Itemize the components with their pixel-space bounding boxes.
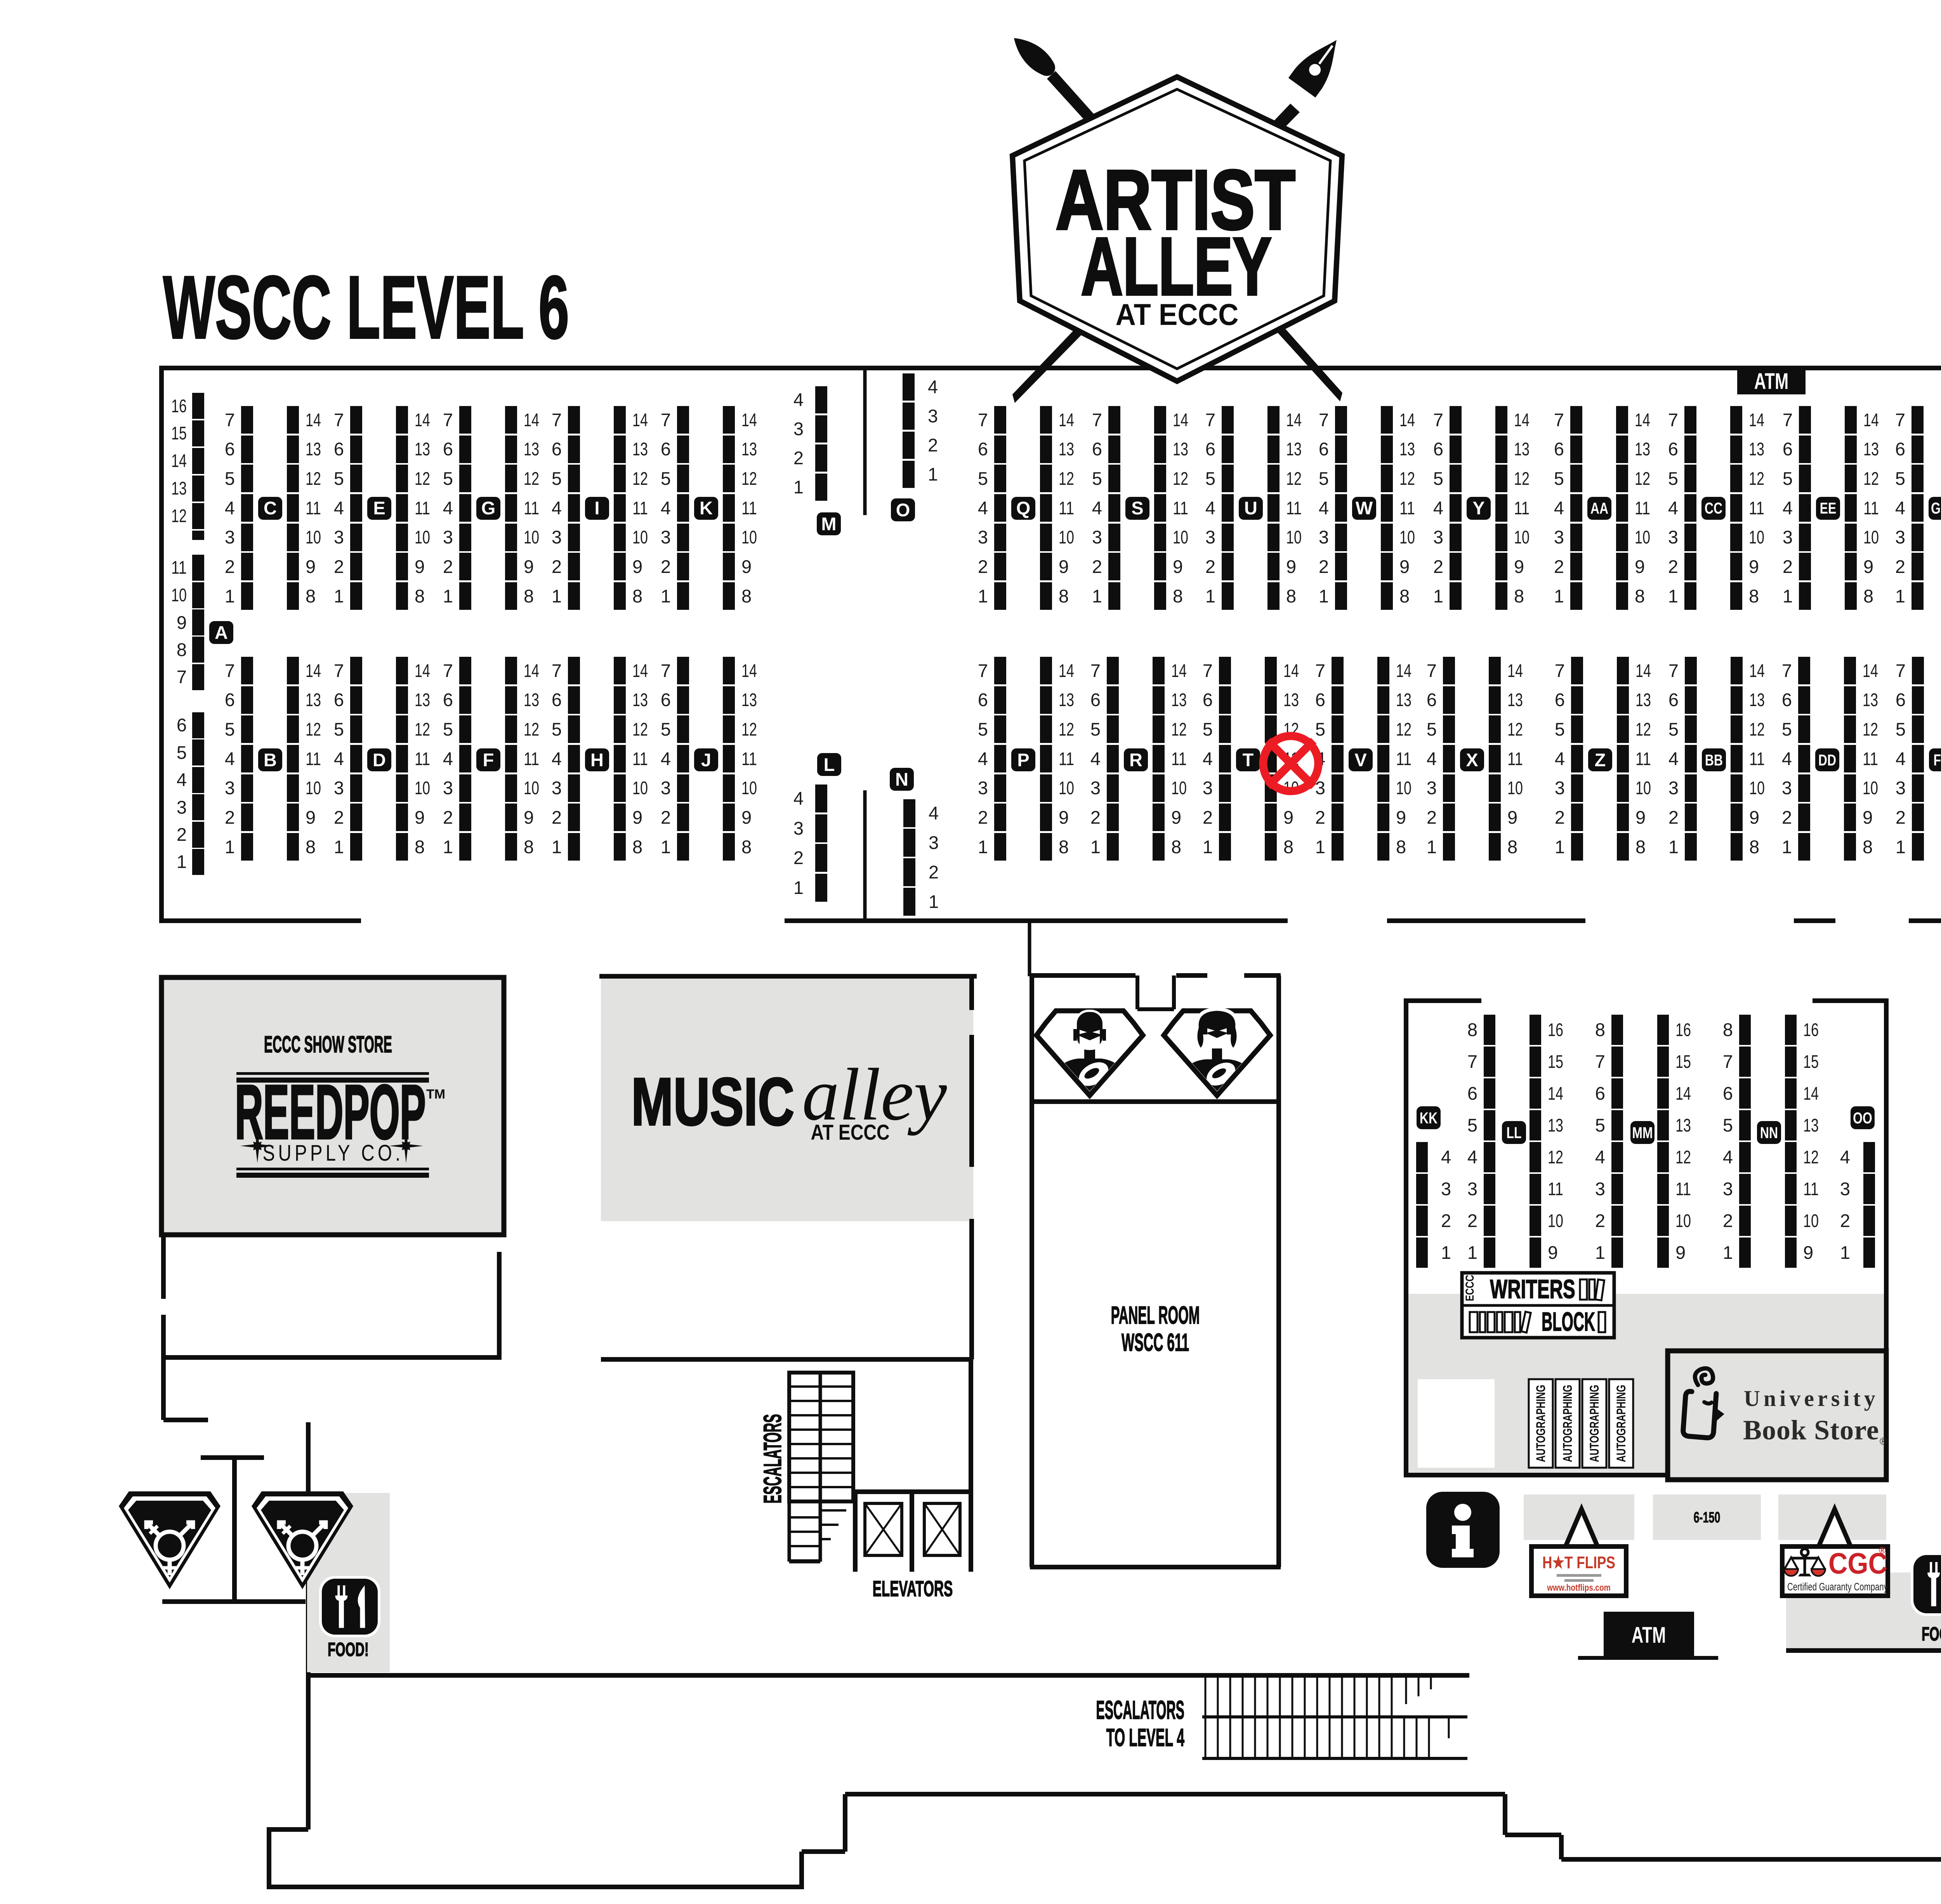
svg-text:3: 3: [928, 406, 938, 426]
svg-text:FF: FF: [1933, 751, 1941, 769]
svg-text:OO: OO: [1853, 1109, 1872, 1127]
svg-text:ECCC SHOW STORE: ECCC SHOW STORE: [264, 1032, 392, 1058]
svg-text:Q: Q: [1016, 498, 1031, 518]
svg-text:H: H: [590, 750, 604, 770]
svg-text:F: F: [483, 750, 494, 770]
svg-text:1: 1: [1840, 1242, 1850, 1263]
svg-text:10: 10: [171, 585, 187, 605]
svg-text:EE: EE: [1820, 499, 1837, 517]
svg-text:R: R: [1129, 750, 1142, 770]
svg-text:MUSIC: MUSIC: [631, 1064, 794, 1140]
svg-text:I: I: [594, 498, 599, 518]
svg-text:8: 8: [177, 639, 187, 660]
svg-text:1: 1: [177, 851, 187, 872]
svg-text:1: 1: [928, 464, 938, 484]
svg-text:2: 2: [1441, 1210, 1451, 1231]
svg-text:®: ®: [1879, 1545, 1886, 1556]
svg-text:2: 2: [793, 448, 804, 468]
svg-text:P: P: [1017, 750, 1029, 770]
svg-text:3: 3: [1840, 1179, 1850, 1199]
svg-text:K: K: [700, 498, 713, 518]
svg-text:KK: KK: [1420, 1109, 1438, 1127]
svg-text:1: 1: [793, 877, 804, 898]
svg-text:J: J: [701, 750, 711, 770]
svg-text:ESCALATORS: ESCALATORS: [759, 1414, 786, 1503]
svg-text:4: 4: [1840, 1147, 1850, 1167]
svg-text:Z: Z: [1595, 750, 1606, 770]
svg-text:WSCC LEVEL 6: WSCC LEVEL 6: [163, 258, 569, 357]
svg-text:ELEVATORS: ELEVATORS: [873, 1576, 953, 1601]
svg-text:U: U: [1244, 498, 1257, 518]
svg-text:LL: LL: [1506, 1124, 1521, 1142]
svg-text:GG: GG: [1931, 499, 1941, 517]
svg-text:3: 3: [1441, 1179, 1451, 1199]
svg-text:NN: NN: [1760, 1124, 1778, 1142]
svg-text:5: 5: [177, 742, 187, 763]
svg-text:Book Store: Book Store: [1743, 1415, 1879, 1446]
svg-text:14: 14: [171, 450, 187, 471]
svg-text:CC: CC: [1705, 499, 1722, 517]
svg-text:Y: Y: [1472, 498, 1484, 518]
svg-text:M: M: [821, 514, 836, 534]
svg-text:ECCC: ECCC: [1463, 1275, 1476, 1301]
svg-text:1: 1: [929, 891, 939, 912]
svg-text:TM: TM: [426, 1087, 445, 1102]
svg-text:2: 2: [1840, 1210, 1850, 1231]
svg-text:AUTOGRAPHING: AUTOGRAPHING: [1588, 1385, 1602, 1462]
svg-text:H★T FLIPS: H★T FLIPS: [1542, 1553, 1615, 1572]
svg-text:PANEL ROOM: PANEL ROOM: [1111, 1302, 1200, 1329]
svg-text:3: 3: [929, 832, 939, 853]
svg-text:AUTOGRAPHING: AUTOGRAPHING: [1615, 1385, 1628, 1462]
svg-text:16: 16: [171, 396, 187, 416]
svg-text:AA: AA: [1590, 499, 1608, 517]
svg-text:ATM: ATM: [1754, 368, 1789, 394]
svg-text:AT ECCC: AT ECCC: [1116, 298, 1239, 332]
svg-text:3: 3: [793, 818, 804, 838]
svg-text:FOOD!: FOOD!: [1922, 1623, 1941, 1644]
svg-text:X: X: [1466, 750, 1478, 770]
svg-text:B: B: [264, 750, 277, 770]
svg-text:AUTOGRAPHING: AUTOGRAPHING: [1561, 1385, 1575, 1462]
svg-text:ESCALATORS: ESCALATORS: [1096, 1696, 1184, 1725]
svg-text:Certified Guaranty Company: Certified Guaranty Company: [1787, 1581, 1888, 1593]
svg-text:4: 4: [929, 803, 939, 823]
svg-text:E: E: [373, 498, 385, 518]
svg-text:2: 2: [793, 847, 804, 868]
svg-text:4: 4: [1441, 1147, 1451, 1167]
svg-text:4: 4: [793, 389, 804, 410]
svg-text:L: L: [824, 754, 835, 775]
svg-text:A: A: [215, 622, 228, 643]
svg-text:BB: BB: [1705, 751, 1723, 769]
svg-text:4: 4: [177, 769, 187, 790]
svg-text:T: T: [1243, 750, 1254, 770]
svg-text:S: S: [1131, 498, 1143, 518]
svg-text:www.hotflips.com: www.hotflips.com: [1547, 1582, 1610, 1593]
svg-text:W: W: [1356, 498, 1373, 518]
svg-text:4: 4: [793, 788, 804, 809]
svg-text:MM: MM: [1632, 1124, 1653, 1142]
svg-text:7: 7: [177, 666, 187, 687]
svg-text:3: 3: [177, 797, 187, 817]
svg-text:3: 3: [793, 418, 804, 439]
svg-text:ATM: ATM: [1632, 1622, 1666, 1647]
svg-text:12: 12: [171, 505, 187, 526]
svg-text:11: 11: [171, 557, 187, 578]
svg-text:13: 13: [171, 478, 187, 498]
svg-text:DD: DD: [1818, 751, 1836, 769]
svg-text:FOOD!: FOOD!: [328, 1638, 369, 1660]
svg-text:O: O: [896, 500, 910, 520]
svg-text:University: University: [1744, 1386, 1879, 1411]
svg-text:D: D: [373, 750, 386, 770]
svg-text:®: ®: [1880, 1435, 1887, 1447]
svg-text:AT ECCC: AT ECCC: [811, 1120, 889, 1144]
svg-text:2: 2: [929, 862, 939, 882]
svg-text:15: 15: [171, 423, 187, 443]
svg-text:WRITERS: WRITERS: [1490, 1275, 1575, 1304]
svg-text:4: 4: [928, 377, 938, 397]
svg-text:2: 2: [177, 824, 187, 845]
svg-text:WSCC 611: WSCC 611: [1122, 1328, 1189, 1356]
svg-text:6: 6: [177, 715, 187, 735]
svg-text:V: V: [1354, 750, 1367, 770]
svg-text:TO LEVEL 4: TO LEVEL 4: [1106, 1723, 1184, 1751]
svg-text:9: 9: [177, 612, 187, 633]
svg-text:SUPPLY CO.: SUPPLY CO.: [263, 1141, 404, 1166]
svg-text:6-150: 6-150: [1694, 1509, 1721, 1526]
svg-text:1: 1: [1441, 1242, 1451, 1263]
svg-text:BLOCK: BLOCK: [1542, 1307, 1595, 1336]
svg-text:1: 1: [793, 477, 804, 497]
svg-text:G: G: [481, 498, 496, 518]
svg-text:C: C: [264, 498, 277, 518]
svg-text:AUTOGRAPHING: AUTOGRAPHING: [1534, 1385, 1548, 1462]
svg-text:N: N: [895, 769, 908, 790]
svg-text:2: 2: [928, 435, 938, 455]
